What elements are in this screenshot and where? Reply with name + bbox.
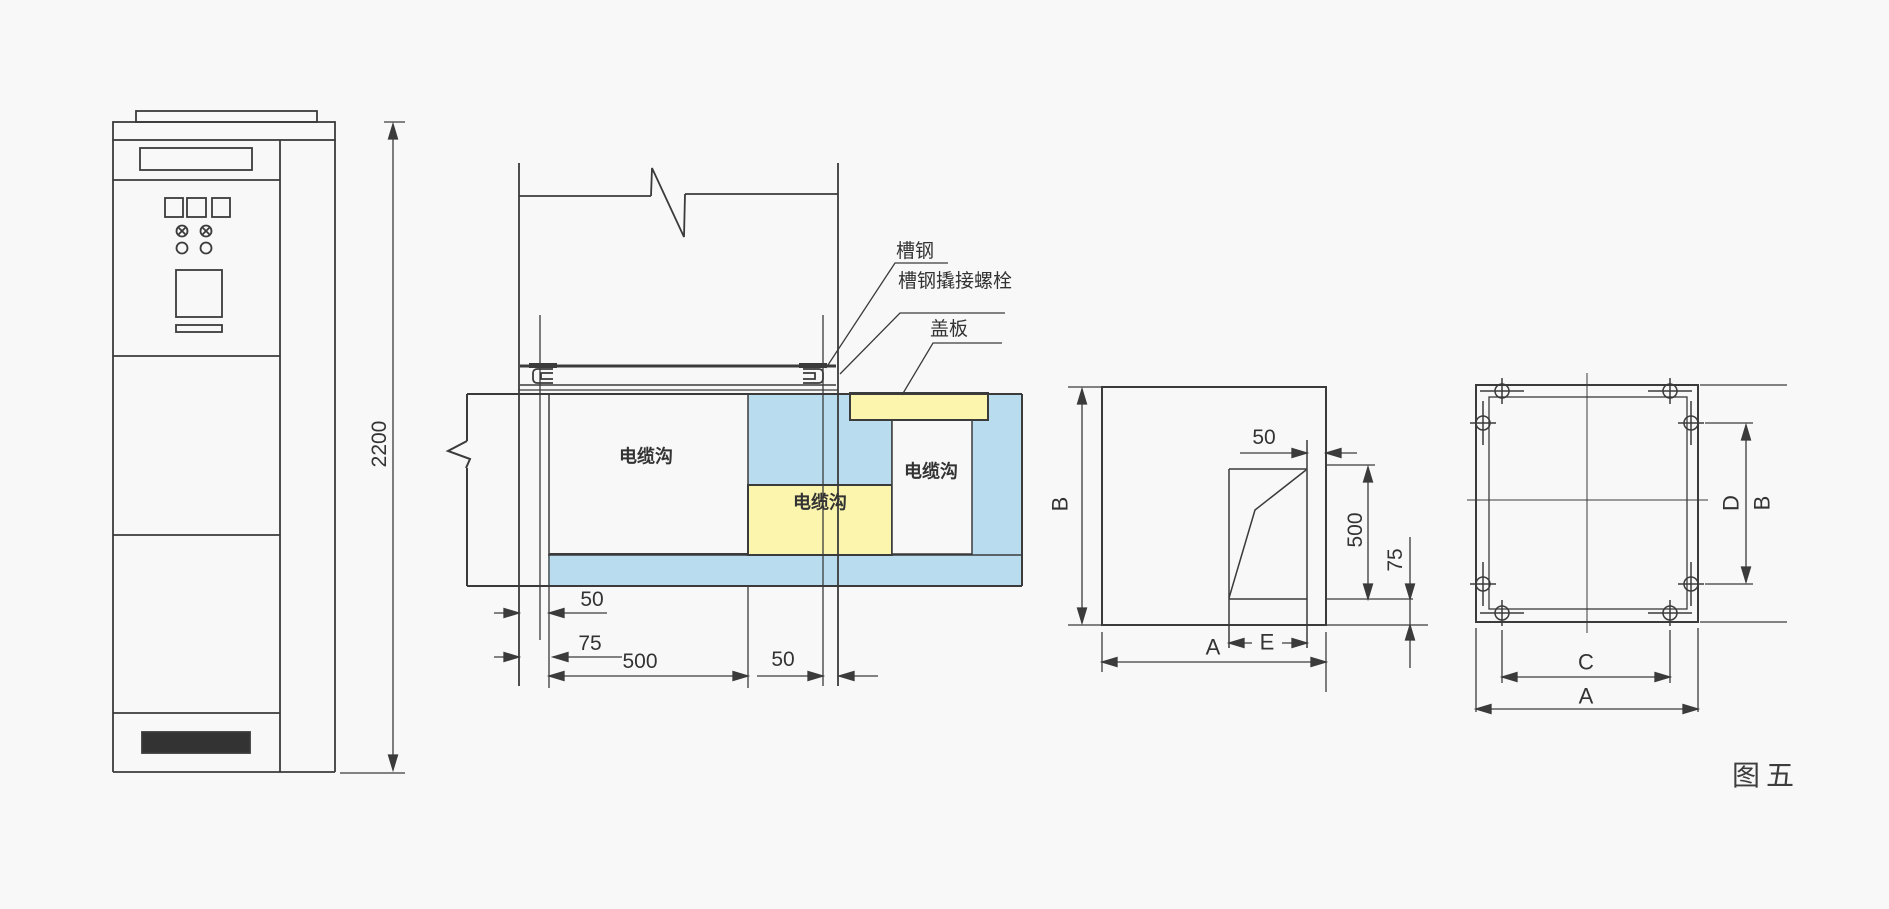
- dim-c-plan: C: [1578, 649, 1594, 674]
- channel-steel-end-left: [533, 369, 553, 383]
- meter-window: [176, 270, 222, 317]
- indicator-lamp-icon: [177, 226, 212, 254]
- label-cover-plate: 盖板: [930, 319, 968, 341]
- cabinet-front-view: [113, 111, 335, 772]
- label-cable-trench-mid: 电缆沟: [793, 493, 847, 514]
- cable-path: [1229, 470, 1306, 598]
- label-cable-trench-right: 电缆沟: [904, 462, 958, 483]
- side-view: [1068, 387, 1428, 692]
- dim-d-plan: D: [1718, 495, 1743, 511]
- break-symbol: [448, 441, 470, 468]
- dim-50-left: 50: [580, 588, 603, 612]
- nameplate: [140, 148, 252, 170]
- dim-50-side: 50: [1252, 426, 1275, 450]
- dim-e-side: E: [1260, 629, 1275, 654]
- trench-section-view: [448, 163, 1022, 688]
- dim-500-side: 500: [1344, 512, 1368, 547]
- section-dimensions: [494, 609, 878, 681]
- dim-b-plan: B: [1749, 496, 1774, 511]
- trench-concrete-bottom: [548, 555, 1022, 586]
- dim-a-side: A: [1206, 634, 1221, 659]
- channel-steel: [519, 363, 838, 390]
- dim-50-right: 50: [771, 648, 794, 672]
- label-cable-trench-left: 电缆沟: [619, 447, 673, 468]
- technical-drawing-figure5: 2200 槽钢 槽钢撬接螺栓 盖板 电缆沟 电缆沟 电缆沟 50 75 500 …: [0, 0, 1889, 909]
- cabinet-break-symbol: [519, 168, 838, 237]
- anchor-bolt-left: [529, 363, 557, 368]
- figure-label: 图五: [1732, 760, 1800, 792]
- dim-75-side: 75: [1384, 548, 1408, 571]
- indicator-window: [187, 198, 206, 217]
- cable-trench-right: [892, 420, 972, 554]
- plan-view-dimensions: [1476, 385, 1787, 714]
- channel-steel-end-right: [803, 369, 823, 383]
- anchor-bolt-right: [799, 363, 827, 368]
- side-view-dimensions: [1068, 387, 1428, 692]
- cover-plate: [850, 393, 988, 420]
- plan-view: [1467, 373, 1787, 714]
- dim-a-plan: A: [1579, 683, 1594, 708]
- dim-500: 500: [622, 650, 657, 674]
- indicator-window: [165, 198, 183, 217]
- dim-b-side: B: [1047, 497, 1072, 512]
- indicator-window: [212, 198, 230, 217]
- drawing-canvas: [0, 0, 1889, 909]
- label-channel-bolt: 槽钢撬接螺栓: [898, 271, 1012, 293]
- ventilation-grille: [142, 732, 250, 753]
- dim-2200: 2200: [368, 421, 392, 468]
- dim-75: 75: [578, 632, 601, 656]
- label-channel-steel: 槽钢: [896, 241, 934, 263]
